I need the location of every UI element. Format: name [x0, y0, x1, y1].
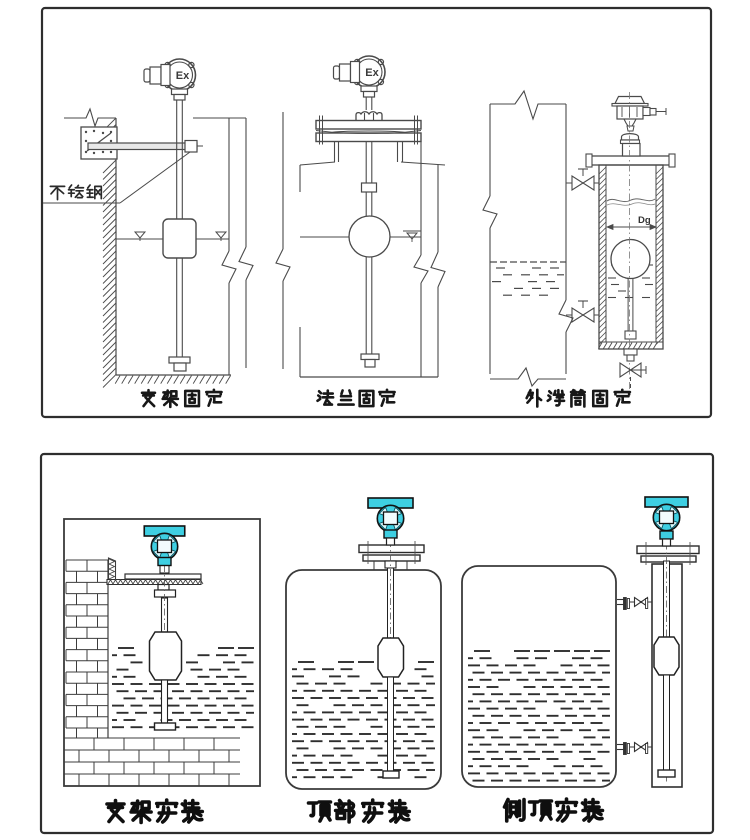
svg-text:Ex: Ex [365, 67, 379, 79]
svg-text:Ex: Ex [176, 70, 190, 82]
svg-text:Dg: Dg [638, 215, 651, 226]
